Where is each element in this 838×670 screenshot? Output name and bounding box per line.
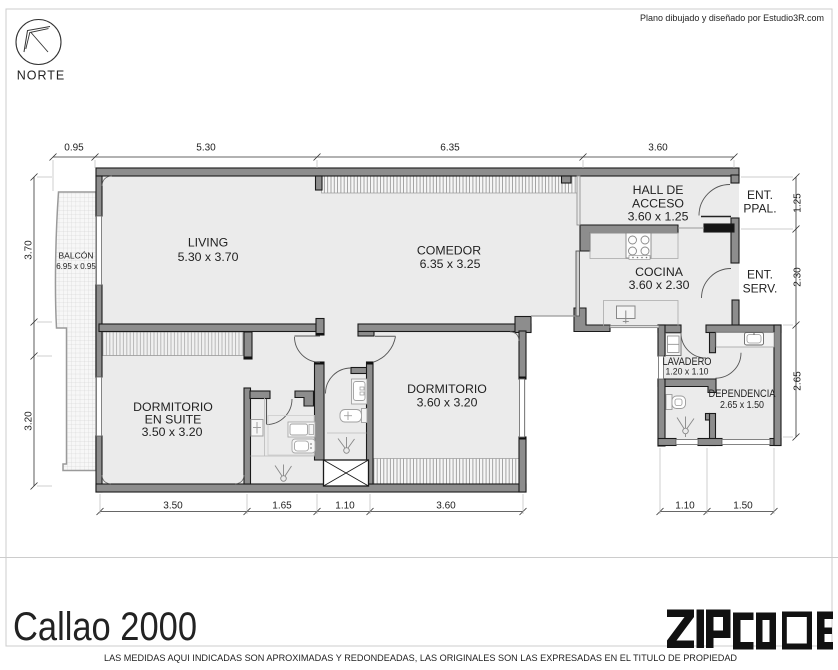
- svg-text:BALCÓN: BALCÓN: [59, 251, 94, 261]
- svg-text:ENT.: ENT.: [747, 268, 773, 282]
- svg-text:COCINA: COCINA: [635, 265, 684, 279]
- svg-text:3.60: 3.60: [648, 143, 668, 154]
- svg-text:Plano dibujado y diseñado por: Plano dibujado y diseñado por Estudio3R.…: [640, 13, 824, 24]
- svg-text:LIVING: LIVING: [188, 236, 228, 250]
- svg-text:6.35: 6.35: [440, 143, 460, 154]
- svg-text:PPAL.: PPAL.: [743, 202, 776, 216]
- svg-text:ACCESO: ACCESO: [632, 197, 684, 211]
- svg-text:1.50: 1.50: [733, 501, 753, 512]
- svg-text:5.30: 5.30: [196, 143, 216, 154]
- svg-text:HALL DE: HALL DE: [633, 183, 684, 197]
- svg-text:NORTE: NORTE: [17, 69, 66, 83]
- svg-text:1.20 x 1.10: 1.20 x 1.10: [666, 367, 709, 378]
- svg-text:1.25: 1.25: [793, 193, 804, 213]
- svg-text:3.60 x 2.30: 3.60 x 2.30: [629, 278, 690, 292]
- svg-text:3.50 x 3.20: 3.50 x 3.20: [142, 425, 203, 439]
- svg-text:COMEDOR: COMEDOR: [417, 244, 481, 258]
- svg-text:3.50: 3.50: [163, 501, 183, 512]
- svg-text:3.60: 3.60: [436, 501, 456, 512]
- svg-text:3.20: 3.20: [24, 411, 35, 431]
- svg-text:2.65 x 1.50: 2.65 x 1.50: [720, 399, 764, 411]
- svg-text:3.60 x 1.25: 3.60 x 1.25: [628, 210, 689, 224]
- svg-text:2.65: 2.65: [793, 371, 804, 391]
- svg-text:DORMITORIO: DORMITORIO: [407, 382, 487, 396]
- svg-text:LAS MEDIDAS AQUI INDICADAS SON: LAS MEDIDAS AQUI INDICADAS SON APROXIMAD…: [104, 653, 738, 663]
- svg-text:5.30 x 3.70: 5.30 x 3.70: [178, 250, 239, 264]
- svg-text:1.10: 1.10: [335, 501, 355, 512]
- svg-text:1.10: 1.10: [675, 501, 695, 512]
- svg-text:1.65: 1.65: [272, 501, 292, 512]
- svg-text:ENT.: ENT.: [747, 188, 773, 202]
- svg-text:2.30: 2.30: [793, 267, 804, 287]
- svg-text:6.95 x 0.95: 6.95 x 0.95: [56, 262, 96, 271]
- svg-text:6.35 x 3.25: 6.35 x 3.25: [420, 257, 481, 271]
- svg-text:3.70: 3.70: [24, 240, 35, 260]
- svg-text:SERV.: SERV.: [743, 282, 778, 296]
- svg-text:0.95: 0.95: [64, 143, 84, 154]
- svg-text:Callao 2000: Callao 2000: [13, 605, 197, 649]
- svg-text:3.60 x 3.20: 3.60 x 3.20: [417, 396, 478, 410]
